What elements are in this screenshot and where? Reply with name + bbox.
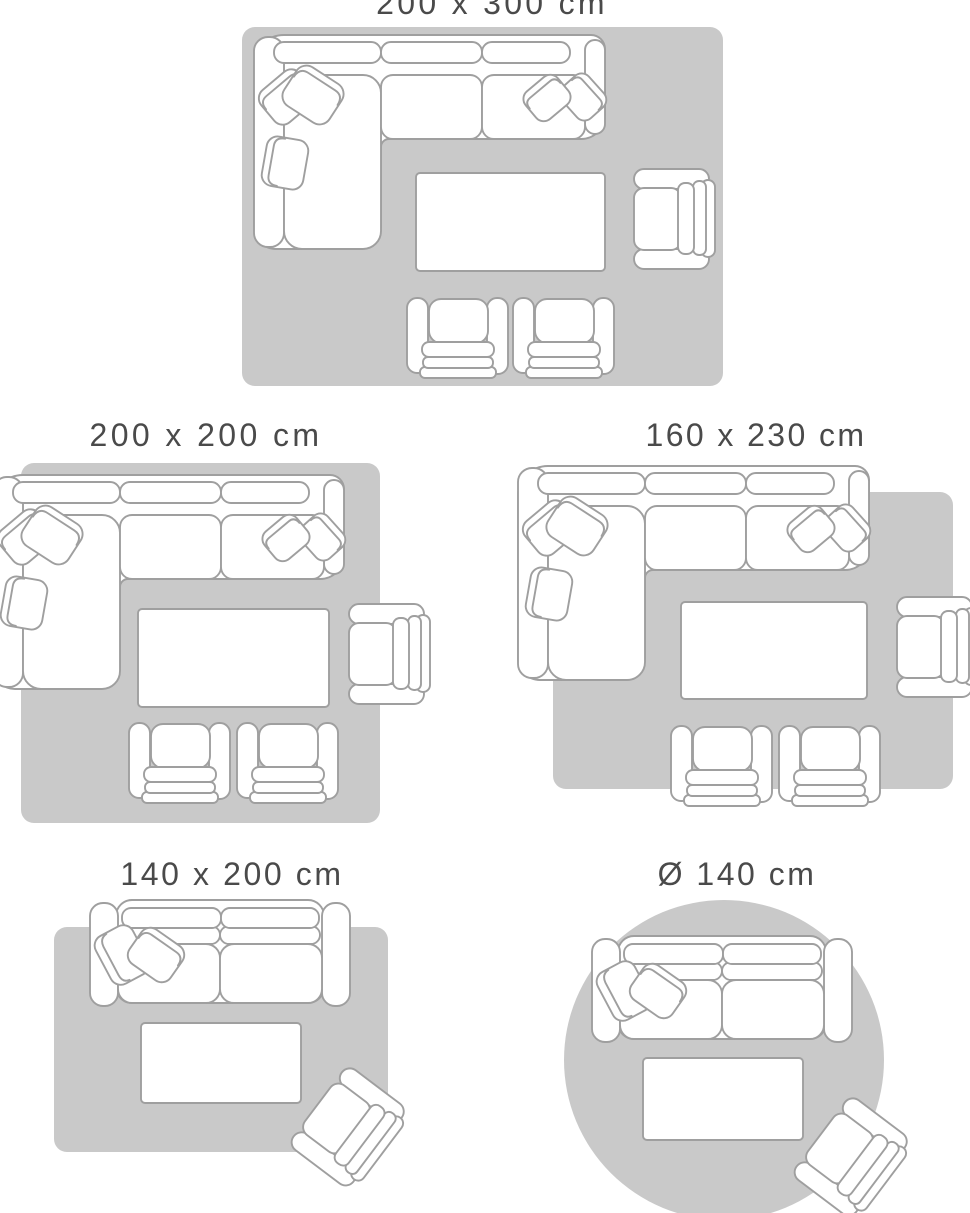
svg-text:140 x 200 cm: 140 x 200 cm — [120, 856, 343, 892]
svg-text:Ø 140 cm: Ø 140 cm — [658, 856, 817, 892]
svg-text:200 x 200 cm: 200 x 200 cm — [90, 417, 323, 453]
svg-text:200 x 300 cm: 200 x 300 cm — [376, 0, 608, 21]
svg-text:160 x 230 cm: 160 x 230 cm — [646, 417, 867, 453]
